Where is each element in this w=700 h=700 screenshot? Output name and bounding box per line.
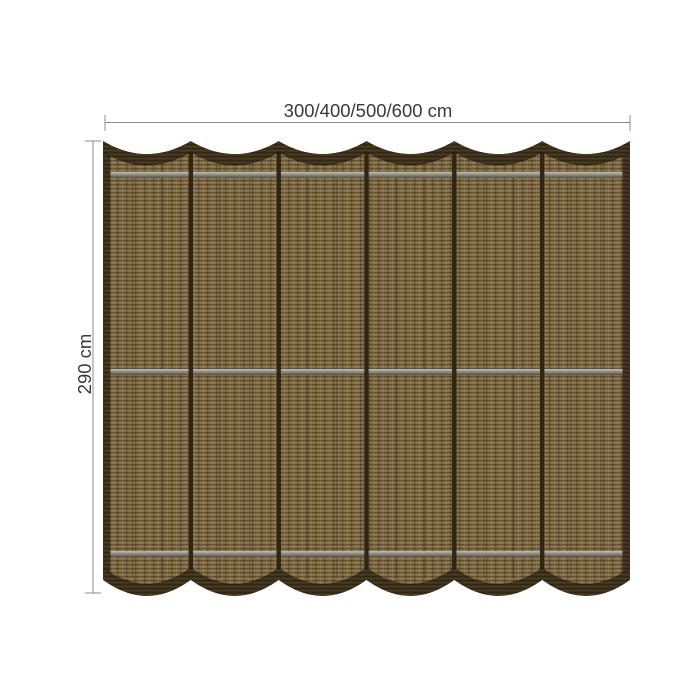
shade-cloth-diagram: 300/400/500/600 cm 290 cm [0, 0, 700, 700]
height-dimension-label: 290 cm [74, 334, 95, 395]
product-dimension-diagram: 300/400/500/600 cm 290 cm [0, 0, 700, 700]
panel-seam [540, 146, 544, 578]
shade-cloth-fabric [103, 141, 630, 596]
panel-seam [364, 146, 368, 578]
right-border [623, 141, 631, 580]
panel-seam [452, 146, 456, 578]
left-border [103, 141, 111, 580]
panel-seam [277, 146, 281, 578]
panel-seam [189, 146, 193, 578]
width-dimension-label: 300/400/500/600 cm [284, 100, 453, 121]
